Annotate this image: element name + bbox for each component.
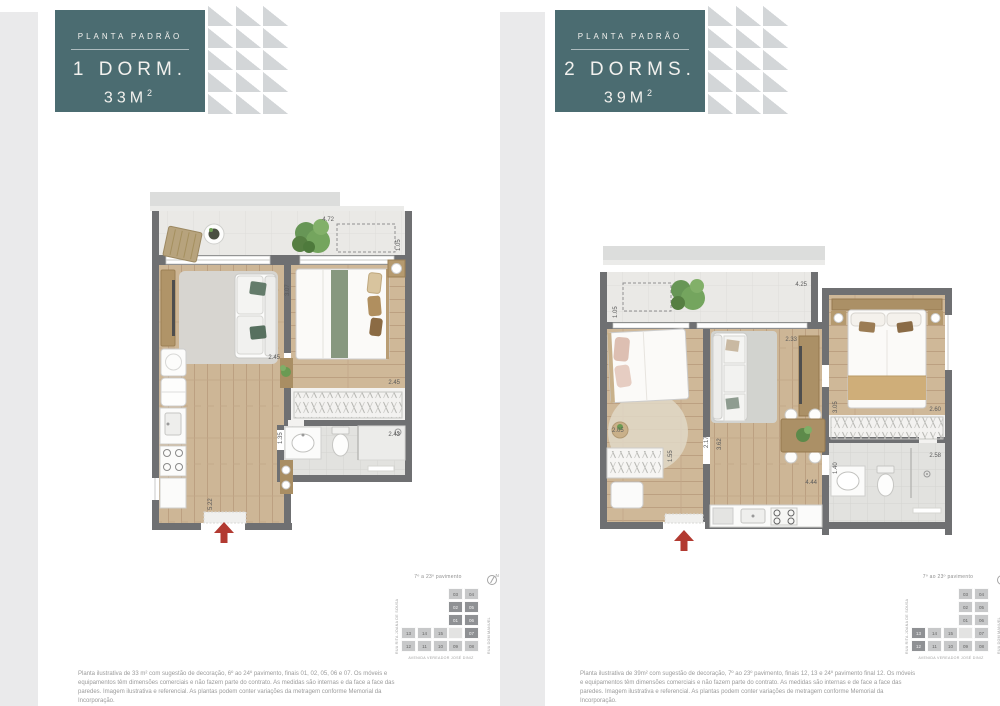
keyplan-unit-09: 09 <box>958 640 973 652</box>
keyplan-unit-07: 07 <box>464 627 479 639</box>
svg-text:1.05: 1.05 <box>613 306 619 318</box>
keyplan-building: 030402050106070908131415121110 <box>401 588 481 654</box>
compass-icon: N <box>485 572 501 591</box>
triangle-tile <box>236 50 261 70</box>
balcony-floor <box>607 272 818 322</box>
svg-text:2.45: 2.45 <box>268 355 280 361</box>
closet2-hangers <box>831 417 943 439</box>
street-bottom: AVENIDA VEREADOR JOSÉ DINIZ <box>399 656 483 660</box>
triangle-tile <box>736 94 761 114</box>
svg-text:4.72: 4.72 <box>322 217 334 223</box>
keyplan-unit-06: 06 <box>464 614 479 626</box>
triangle-tile <box>736 72 761 92</box>
keyplan-floors-label: 7º ao 23º pavimento <box>909 574 987 580</box>
bed1 <box>607 329 689 403</box>
street-left: RUA RITA JOANA DE SOUSA <box>905 599 909 654</box>
keyplan-core <box>448 627 463 639</box>
keyplan-unit-10: 10 <box>433 640 448 652</box>
triangle-tile <box>208 50 233 70</box>
plan-badge-1dorm: PLANTA PADRÃO 1 DORM. 33M2 <box>55 10 205 112</box>
entry-arrow-icon <box>674 530 694 551</box>
bedroom-furniture <box>294 260 405 418</box>
keyplan-unit-05: 05 <box>974 601 989 613</box>
keyplan-unit-14: 14 <box>927 627 942 639</box>
triangle-tile <box>208 28 233 48</box>
kitchen <box>160 349 186 508</box>
floorplan-1dorm: 4.72 1.05 3.07 2.45 2.45 1.35 2.43 5.22 <box>38 130 500 550</box>
compass-icon: N <box>995 572 1000 591</box>
triangle-tile <box>263 6 288 26</box>
triangle-tile <box>763 28 788 48</box>
keyplan-unit-15: 15 <box>433 627 448 639</box>
keyplan-unit-11: 11 <box>927 640 942 652</box>
triangle-tile <box>708 94 733 114</box>
svg-text:5.22: 5.22 <box>208 498 214 510</box>
svg-text:4.25: 4.25 <box>795 282 807 288</box>
triangle-tile <box>708 6 733 26</box>
badge-title: 2 DORMS. <box>555 59 705 81</box>
triangle-tile <box>263 72 288 92</box>
keyplan-unit-06: 06 <box>974 614 989 626</box>
triangle-pattern <box>708 6 789 113</box>
badge-title: 1 DORM. <box>55 59 205 81</box>
svg-text:2.58: 2.58 <box>929 453 941 459</box>
badge-eyebrow: PLANTA PADRÃO <box>555 32 705 41</box>
entry-mat <box>204 512 246 523</box>
closet-hangers <box>294 392 402 418</box>
badge-area: 39M2 <box>555 88 705 107</box>
keyplan-unit-08: 08 <box>464 640 479 652</box>
triangle-tile <box>263 94 288 114</box>
triangle-tile <box>708 50 733 70</box>
badge-divider <box>571 49 689 50</box>
page-margin-left <box>0 12 38 706</box>
triangle-tile <box>208 94 233 114</box>
keyplan-unit-12: 12 <box>911 640 926 652</box>
street-left: RUA RITA JOANA DE SOUSA <box>395 599 399 654</box>
keyplan-unit-11: 11 <box>417 640 432 652</box>
triangle-tile <box>736 28 761 48</box>
triangle-tile <box>208 6 233 26</box>
street-right: RUA DOM MANUEL <box>487 617 491 654</box>
keyplan-floors-label: 7º a 23º pavimento <box>399 574 477 580</box>
keyplan-unit-02: 02 <box>958 601 973 613</box>
svg-text:2.43: 2.43 <box>388 432 400 438</box>
svg-text:2.60: 2.60 <box>929 407 941 413</box>
triangle-tile <box>763 94 788 114</box>
keyplan-unit-13: 13 <box>911 627 926 639</box>
triangle-tile <box>236 94 261 114</box>
keyplan-unit-03: 03 <box>958 588 973 600</box>
panel-2dorms-39m2: PLANTA PADRÃO 2 DORMS. 39M2 <box>545 0 1000 706</box>
keyplan-2dorms: 7º ao 23º pavimento N 030402050106070908… <box>895 574 1000 666</box>
keyplan-unit-04: 04 <box>464 588 479 600</box>
keyplan-unit-08: 08 <box>974 640 989 652</box>
triangle-tile <box>263 50 288 70</box>
svg-text:2.33: 2.33 <box>785 337 797 343</box>
street-bottom: AVENIDA VEREADOR JOSÉ DINIZ <box>909 656 993 660</box>
svg-text:3.62: 3.62 <box>717 438 723 450</box>
keyplan-unit-01: 01 <box>448 614 463 626</box>
plan-badge-2dorms: PLANTA PADRÃO 2 DORMS. 39M2 <box>555 10 705 112</box>
keyplan-unit-05: 05 <box>464 601 479 613</box>
triangle-tile <box>736 50 761 70</box>
triangle-tile <box>236 6 261 26</box>
keyplan-unit-07: 07 <box>974 627 989 639</box>
keyplan-unit-15: 15 <box>943 627 958 639</box>
triangle-pattern <box>208 6 289 113</box>
triangle-tile <box>708 28 733 48</box>
svg-text:1.05: 1.05 <box>396 239 402 251</box>
badge-eyebrow: PLANTA PADRÃO <box>55 32 205 41</box>
keyplan-unit-13: 13 <box>401 627 416 639</box>
toilet <box>332 427 349 434</box>
toilet <box>877 466 894 473</box>
keyplan-unit-03: 03 <box>448 588 463 600</box>
armchair <box>611 482 643 508</box>
triangle-tile <box>763 50 788 70</box>
svg-text:N: N <box>496 573 499 578</box>
badge-divider <box>71 49 189 50</box>
keyplan-core <box>958 627 973 639</box>
keyplan-unit-09: 09 <box>448 640 463 652</box>
svg-text:2.05: 2.05 <box>612 428 624 434</box>
tv <box>799 346 802 404</box>
keyplan-building: 030402050106070908131415121110 <box>911 588 991 654</box>
badge-area: 33M2 <box>55 88 205 107</box>
plant-icon <box>671 279 705 310</box>
keyplan-unit-14: 14 <box>417 627 432 639</box>
roof-slab <box>150 192 404 211</box>
triangle-tile <box>208 72 233 92</box>
triangle-tile <box>763 6 788 26</box>
page-divider <box>500 12 545 706</box>
svg-text:3.05: 3.05 <box>833 401 839 413</box>
keyplan-unit-10: 10 <box>943 640 958 652</box>
keyplan-unit-02: 02 <box>448 601 463 613</box>
svg-text:1.35: 1.35 <box>278 432 284 444</box>
triangle-tile <box>708 72 733 92</box>
kitchen <box>710 505 822 527</box>
svg-text:1.40: 1.40 <box>833 462 839 474</box>
keyplan-unit-04: 04 <box>974 588 989 600</box>
roof-slab <box>603 246 825 265</box>
triangle-tile <box>236 72 261 92</box>
floorplan-2dorms: 4.25 1.05 2.33 3.05 2.60 2.05 1.55 2.17 … <box>545 130 1000 570</box>
legal-caption: Planta ilustrativa de 39m² com sugestão … <box>580 670 918 706</box>
keyplan-unit-01: 01 <box>958 614 973 626</box>
triangle-tile <box>236 28 261 48</box>
sofa <box>713 333 747 421</box>
triangle-tile <box>763 72 788 92</box>
triangle-tile <box>263 28 288 48</box>
headboard <box>832 299 942 310</box>
triangle-tile <box>736 6 761 26</box>
keyplan-1dorm: 7º a 23º pavimento N 0304020501060709081… <box>385 574 503 666</box>
svg-text:2.45: 2.45 <box>388 380 400 386</box>
legal-caption: Planta ilustrativa de 33 m² com sugestão… <box>78 670 416 706</box>
svg-text:3.07: 3.07 <box>285 284 291 296</box>
entry-mat <box>665 514 703 523</box>
tv <box>172 280 175 336</box>
svg-text:1.55: 1.55 <box>668 450 674 462</box>
keyplan-unit-12: 12 <box>401 640 416 652</box>
sofa <box>235 274 276 358</box>
svg-text:4.44: 4.44 <box>805 480 817 486</box>
svg-text:2.17: 2.17 <box>704 436 710 448</box>
panel-1dorm-33m2: PLANTA PADRÃO 1 DORM. 33M2 <box>38 0 500 706</box>
bedroom2-furniture <box>831 299 943 439</box>
